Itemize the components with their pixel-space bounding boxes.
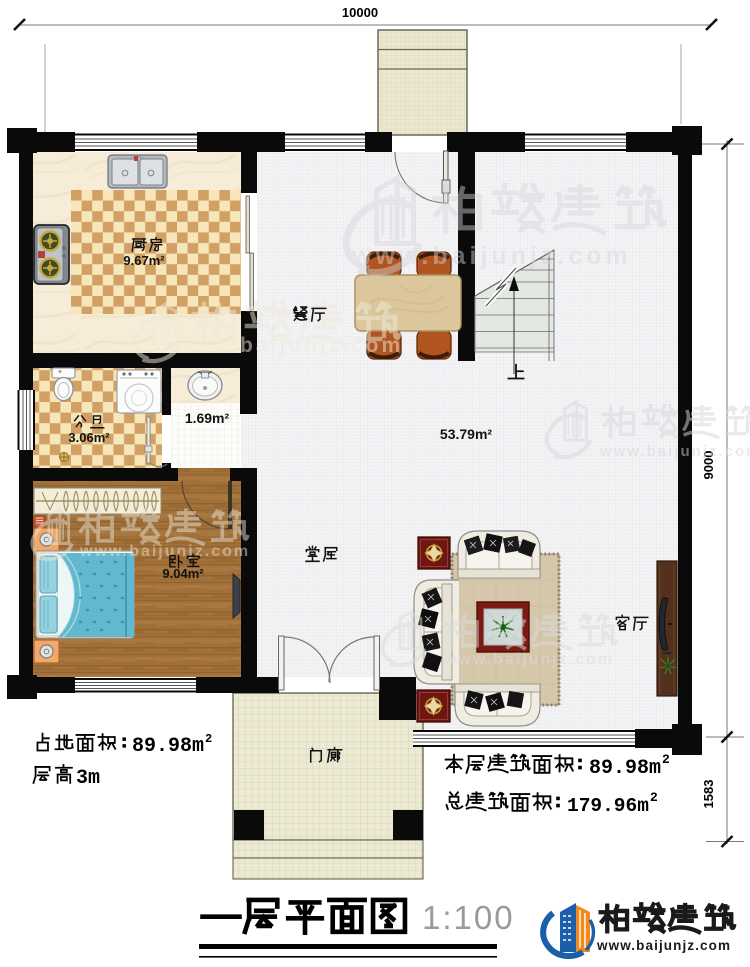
svg-text:179.96m: 179.96m bbox=[567, 795, 649, 817]
svg-text:89.98m: 89.98m bbox=[589, 757, 661, 780]
svg-text:www.baijunjz.com: www.baijunjz.com bbox=[79, 543, 250, 560]
svg-text:10000: 10000 bbox=[342, 5, 378, 20]
svg-text:2: 2 bbox=[205, 732, 212, 746]
svg-text:www.baijunjz.com: www.baijunjz.com bbox=[599, 443, 750, 460]
svg-text:89.98m: 89.98m bbox=[132, 735, 204, 758]
svg-text:baijunjz.com: baijunjz.com bbox=[240, 334, 403, 357]
svg-text:2: 2 bbox=[650, 790, 658, 805]
svg-text:3m: 3m bbox=[76, 767, 100, 790]
svg-text:www.baijunjz.com: www.baijunjz.com bbox=[443, 651, 614, 668]
svg-text:www.baijunjz.com: www.baijunjz.com bbox=[351, 242, 632, 270]
svg-text:1583: 1583 bbox=[701, 780, 716, 809]
svg-text:9.04m²: 9.04m² bbox=[162, 566, 204, 581]
svg-text:1:100: 1:100 bbox=[422, 899, 515, 936]
svg-text:9.67m²: 9.67m² bbox=[123, 253, 165, 268]
svg-text:www.baijunjz.com: www.baijunjz.com bbox=[596, 938, 731, 953]
svg-text:53.79m²: 53.79m² bbox=[440, 426, 492, 442]
svg-text:1.69m²: 1.69m² bbox=[185, 410, 230, 426]
svg-text:2: 2 bbox=[662, 752, 670, 767]
svg-text:3.06m²: 3.06m² bbox=[68, 430, 110, 445]
